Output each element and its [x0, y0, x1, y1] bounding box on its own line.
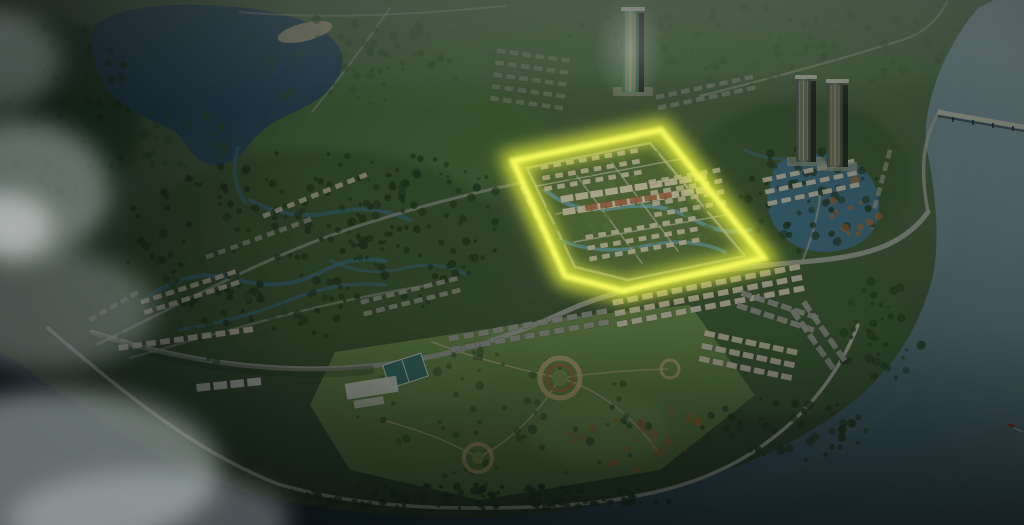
- scene-canvas: [0, 0, 1024, 525]
- aerial-masterplan-render: [0, 0, 1024, 525]
- landmark-tower-aura: [594, 0, 666, 104]
